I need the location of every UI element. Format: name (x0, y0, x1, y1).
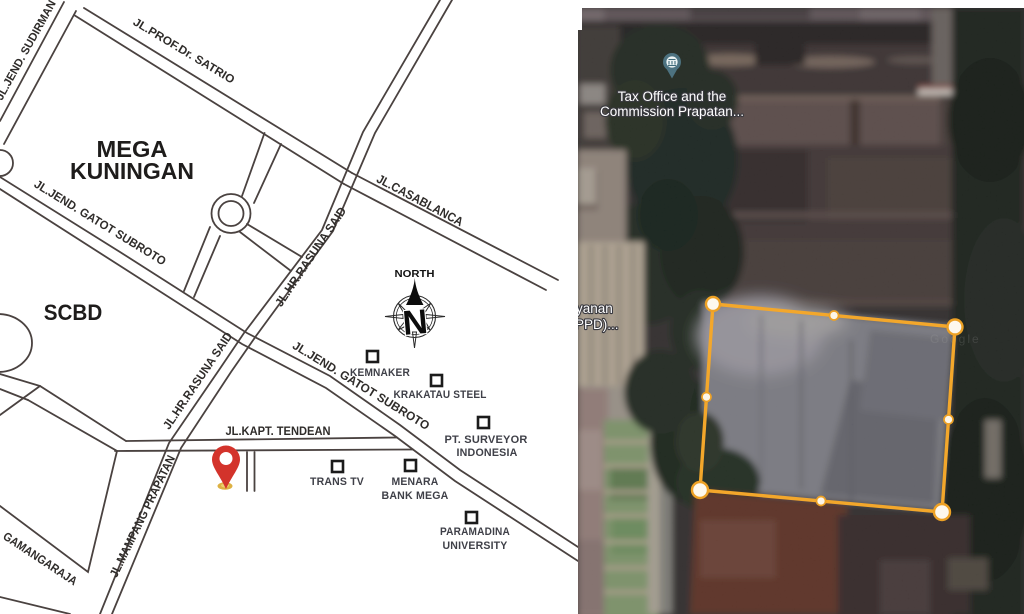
svg-text:UNIVERSITY: UNIVERSITY (443, 540, 508, 552)
svg-text:BANK MEGA: BANK MEGA (382, 490, 449, 502)
svg-text:NORTH: NORTH (395, 269, 435, 280)
svg-text:Commission Prapatan...: Commission Prapatan... (600, 104, 744, 119)
svg-text:JL.KAPT. TENDEAN: JL.KAPT. TENDEAN (226, 426, 331, 438)
svg-text:Tax Office and the: Tax Office and the (618, 89, 727, 104)
svg-text:TRANS TV: TRANS TV (310, 476, 364, 488)
svg-text:PT. SURVEYOR: PT. SURVEYOR (445, 434, 528, 446)
svg-text:PPD)...: PPD)... (575, 317, 619, 332)
svg-text:MENARA: MENARA (392, 476, 439, 488)
svg-text:PARAMADINA: PARAMADINA (440, 526, 510, 538)
svg-text:yanan: yanan (576, 301, 613, 316)
svg-text:INDONESIA: INDONESIA (457, 447, 518, 459)
svg-text:SCBD: SCBD (44, 300, 103, 325)
svg-text:KUNINGAN: KUNINGAN (70, 158, 194, 184)
svg-text:KEMNAKER: KEMNAKER (350, 367, 410, 379)
svg-text:N: N (401, 303, 429, 343)
svg-text:KRAKATAU STEEL: KRAKATAU STEEL (394, 389, 487, 401)
